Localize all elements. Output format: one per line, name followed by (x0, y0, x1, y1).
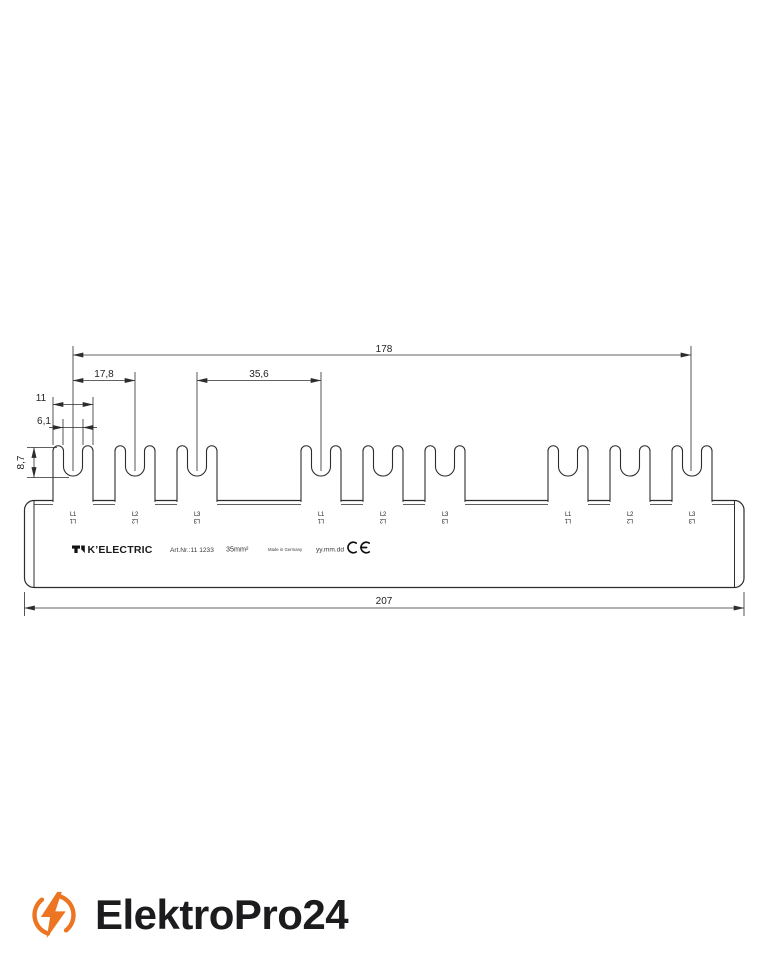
fork-contact-7 (548, 446, 588, 502)
date-code-placeholder: yy.mm.dd (316, 547, 344, 554)
pole-label-8: L2 L2 (626, 512, 634, 523)
pole-label-6: L3 L3 (441, 512, 449, 523)
manufacturer-name: K’ELECTRIC (88, 544, 153, 556)
shop-brand-logo: ElektroPro24 (28, 886, 348, 944)
dim-label-fork-width: 11 (36, 393, 47, 404)
busbar-forks (53, 446, 712, 502)
dim-207: 207 (25, 592, 745, 616)
dim-label-pitch: 17,8 (94, 369, 114, 380)
dim-6-1: 6,1 (37, 416, 97, 445)
lightning-bolt-icon (28, 889, 80, 941)
fork-contact-6 (425, 446, 465, 502)
svg-text:L2: L2 (626, 517, 633, 523)
dim-label-total-pitch: 178 (376, 344, 393, 355)
pole-label-3: L3 L3 (193, 512, 201, 523)
fork-contact-8 (610, 446, 650, 502)
pole-label-5: L2 L2 (379, 512, 387, 523)
svg-text:L2: L2 (131, 517, 138, 523)
made-in-label: Made in Germany (268, 547, 303, 552)
pole-label-9: L3 L3 (688, 512, 696, 523)
product-image-page: L1 L1 L2 L2 L3 L3 L1 L1 L2 L2 L3 L3 (0, 0, 767, 960)
busbar-technical-drawing: L1 L1 L2 L2 L3 L3 L1 L1 L2 L2 L3 L3 (0, 0, 767, 960)
svg-text:L1: L1 (564, 517, 571, 523)
dim-label-overall-length: 207 (376, 596, 393, 607)
pole-label-1: L1 L1 (69, 512, 77, 523)
article-number: Art.Nr.:11 1233 (170, 547, 214, 554)
svg-text:L3: L3 (441, 517, 448, 523)
svg-text:L3: L3 (688, 517, 695, 523)
dim-label-double-pitch: 35,6 (249, 369, 269, 380)
pole-label-2: L2 L2 (131, 512, 139, 523)
fork-contact-9 (672, 446, 712, 502)
cross-section: 35mm² (226, 545, 249, 554)
svg-text:L3: L3 (193, 517, 200, 523)
dim-178: 178 (73, 344, 691, 471)
shop-brand-name: ElektroPro24 (95, 894, 348, 936)
svg-text:L1: L1 (69, 517, 76, 523)
dim-label-slot-depth: 8,7 (16, 455, 27, 469)
dim-label-slot-width: 6,1 (37, 416, 51, 427)
pole-label-4: L1 L1 (317, 512, 325, 523)
svg-text:L2: L2 (379, 517, 386, 523)
pole-label-7: L1 L1 (564, 512, 572, 523)
svg-text:L1: L1 (317, 517, 324, 523)
fork-contact-5 (363, 446, 403, 502)
